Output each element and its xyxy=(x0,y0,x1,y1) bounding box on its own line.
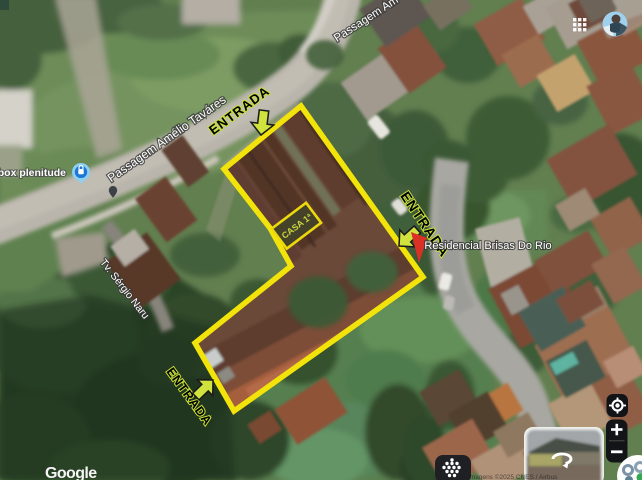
svg-text:box plenitude: box plenitude xyxy=(0,167,66,179)
svg-text:Residencial Brisas Do Rio: Residencial Brisas Do Rio xyxy=(424,240,551,252)
svg-text:Imagens ©2025 CNES / Airbus: Imagens ©2025 CNES / Airbus xyxy=(468,473,558,480)
svg-text:Google: Google xyxy=(45,465,97,480)
